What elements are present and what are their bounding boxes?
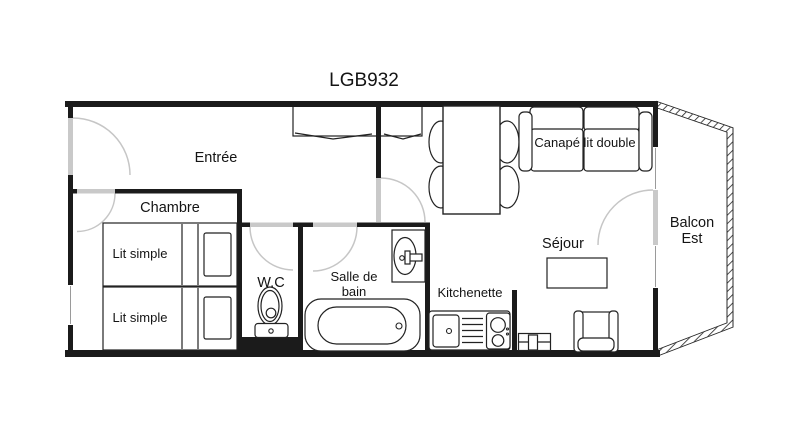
room-label-bathroom-line1: Salle de [331,269,378,284]
door-opening-wc [250,223,293,228]
door-opening-entrance [68,118,73,175]
wc-duct-block [242,337,298,351]
wall-wc-bath-divider [298,225,303,352]
armchair [574,311,618,352]
wall-chambre-top [115,189,242,194]
door-opening-hall [376,178,381,222]
door-opening-chambre [77,189,115,194]
wall-chambre-top [68,189,77,194]
room-label-balcony-line2: Est [682,231,703,247]
dining-table [443,106,500,214]
plan-title: LGB932 [329,70,399,91]
room-label-sejour: Séjour [542,236,584,252]
washbasin-fixture [392,230,425,282]
wall-bath-top [357,223,425,228]
room-label-chambre: Chambre [140,200,200,216]
door-arc-bathroom [313,227,357,271]
room-label-bathroom-line2: bain [342,284,367,299]
burner [491,318,506,333]
tv-console [519,334,551,351]
door-arc-hall [381,178,425,222]
door-arc-entrance [73,118,130,175]
pillow [204,297,231,339]
wall-chambre-right [237,189,242,354]
wall-exterior-top [65,101,658,107]
bathtub-fixture [305,299,420,351]
wall-wc-top [242,223,250,228]
wall-exterior-right [653,288,658,354]
burner [492,335,504,347]
wall-entree-sejour [376,101,381,178]
door-arc-wc [250,227,293,270]
room-label-kitchenette: Kitchenette [437,285,502,300]
furniture-label-bed2: Lit simple [113,310,168,325]
wall-exterior-left [68,101,73,118]
coffee-table [547,258,607,288]
furniture-label-sofa: Canapé lit double [534,135,635,150]
room-label-wc: W.C [257,275,284,291]
pillow [204,233,231,276]
room-label-balcony-line1: Balcon [670,215,714,231]
door-arc-balcony [598,190,653,245]
toilet-fixture [255,287,288,338]
door-opening-bathroom [313,223,357,228]
wall-kitchenette-sejour [512,290,517,352]
kitchen-unit [429,311,510,350]
floor-plan-page: LGB932 Entrée Chambre Lit simple Lit sim… [0,0,800,425]
floor-plan-drawing: LGB932 Entrée Chambre Lit simple Lit sim… [0,0,800,425]
wall-exterior-right [653,101,658,147]
door-opening-balcony [653,190,658,245]
closet-wardrobe [293,106,422,139]
room-label-entree: Entrée [195,150,238,166]
dining-set [429,106,519,214]
furniture-label-bed1: Lit simple [113,246,168,261]
